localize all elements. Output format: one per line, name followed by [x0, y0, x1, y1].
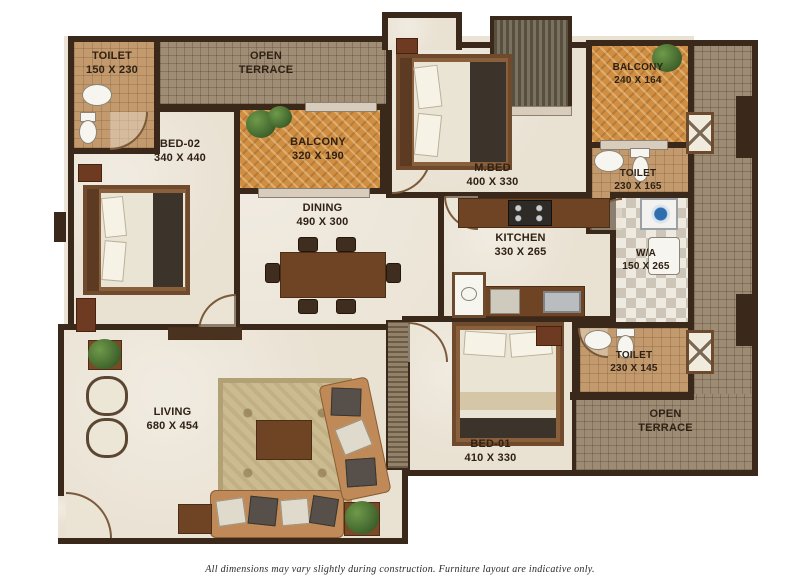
- label-kitchen: KITCHEN 330 X 265: [448, 232, 593, 260]
- label-toilet-bed01: TOILET 230 X 145: [586, 350, 682, 375]
- sofa-bottom: [210, 490, 344, 538]
- living-plant: [88, 339, 121, 369]
- label-master-bed: M.BED 400 X 330: [410, 162, 575, 190]
- room-name: KITCHEN: [448, 232, 593, 246]
- dining-chair: [265, 263, 280, 283]
- toilet-bed01-basin: [584, 330, 612, 350]
- mbed-protrusion: [382, 12, 462, 50]
- room-name: M.BED: [410, 162, 575, 176]
- dining-chair: [386, 263, 401, 283]
- room-name: DINING: [255, 202, 390, 216]
- bed-02-side-table: [78, 164, 102, 182]
- duct-strip: [386, 320, 410, 470]
- room-name: TOILET: [588, 168, 688, 181]
- dining-chair: [298, 299, 318, 314]
- room-name: BED-01: [428, 438, 553, 452]
- toilet1-wc-bowl: [79, 120, 97, 144]
- master-bed-bed: [396, 54, 512, 170]
- room-name: BALCONY: [248, 136, 388, 150]
- dining-chair: [336, 299, 356, 314]
- tv-console: [168, 327, 242, 340]
- label-bed-02: BED-02 340 X 440: [110, 138, 250, 166]
- room-name: W/A: [604, 248, 688, 261]
- label-toilet-top-left: TOILET 150 X 230: [66, 50, 158, 78]
- toilet-master-shower: [686, 112, 714, 154]
- entrance-gap: [58, 496, 66, 538]
- floor-plan: TOILET 150 X 230 OPEN TERRACE BED-02 340…: [0, 0, 800, 584]
- kitchen-sink: [543, 291, 581, 313]
- room-name: BED-02: [110, 138, 250, 152]
- room-size: 680 X 454: [115, 420, 230, 434]
- room-name: TOILET: [66, 50, 158, 64]
- room-name-2: TERRACE: [176, 64, 356, 78]
- wall-terrace-bottom: [570, 392, 694, 400]
- room-name: OPEN: [176, 50, 356, 64]
- balcony1-plant-2: [268, 106, 292, 128]
- wash-basin-counter: [452, 272, 486, 318]
- label-balcony-1: BALCONY 320 X 190: [248, 136, 388, 164]
- bed-01-side-table: [536, 326, 562, 346]
- room-name: LIVING: [115, 406, 230, 420]
- room-size: 410 X 330: [428, 452, 553, 466]
- label-dining: DINING 490 X 300: [255, 202, 390, 230]
- room-size: 150 X 230: [66, 64, 158, 78]
- pilaster-right-2: [736, 294, 758, 346]
- sofa-plant: [345, 501, 379, 534]
- room-name: BALCONY: [588, 62, 688, 75]
- dining-chair: [298, 237, 318, 252]
- label-bed-01: BED-01 410 X 330: [428, 438, 553, 466]
- room-size: 330 X 265: [448, 246, 593, 260]
- room-name: OPEN: [598, 408, 733, 422]
- label-wash-area: W/A 150 X 265: [604, 248, 688, 273]
- terrace-top-window: [305, 102, 377, 112]
- washing-machine: [640, 198, 678, 230]
- room-size: 490 X 300: [255, 216, 390, 230]
- bed-02-bed: [83, 185, 190, 295]
- pilaster-right-1: [736, 96, 758, 158]
- room-size: 150 X 265: [604, 261, 688, 274]
- label-living: LIVING 680 X 454: [115, 406, 230, 434]
- room-name: TOILET: [586, 350, 682, 363]
- label-open-terrace-right: OPEN TERRACE: [598, 408, 733, 436]
- room-size: 240 X 164: [588, 75, 688, 88]
- room-size: 340 X 440: [110, 152, 250, 166]
- toilet-bed01-shower: [686, 330, 714, 374]
- label-open-terrace-top: OPEN TERRACE: [176, 50, 356, 78]
- stove: [508, 200, 552, 226]
- room-size: 230 X 165: [588, 181, 688, 194]
- coffee-table: [256, 420, 312, 460]
- footer-disclaimer: All dimensions may vary slightly during …: [0, 564, 800, 575]
- bed-02-wardrobe: [76, 298, 96, 332]
- balcony1-slider: [258, 188, 370, 198]
- toilet1-basin: [82, 84, 112, 106]
- side-table: [178, 504, 212, 534]
- room-size: 400 X 330: [410, 176, 575, 190]
- dining-chair: [336, 237, 356, 252]
- master-bed-side-table: [396, 38, 418, 54]
- label-toilet-master: TOILET 230 X 165: [588, 168, 688, 193]
- label-balcony-2: BALCONY 240 X 164: [588, 62, 688, 87]
- room-size: 320 X 190: [248, 150, 388, 164]
- room-size: 230 X 145: [586, 363, 682, 376]
- pilaster-left: [54, 212, 66, 242]
- kitchen-platform: [490, 289, 520, 314]
- dining-table: [280, 252, 386, 298]
- room-name-2: TERRACE: [598, 422, 733, 436]
